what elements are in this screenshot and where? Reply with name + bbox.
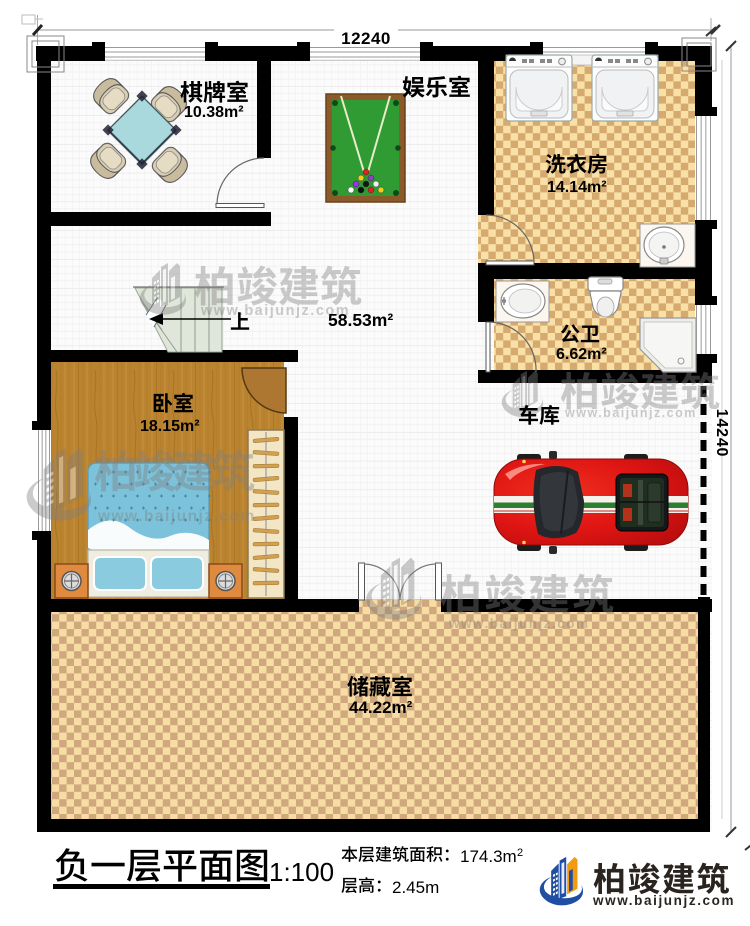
svg-text:58.53m²: 58.53m² (328, 310, 393, 330)
svg-text:14.14m²: 14.14m² (547, 179, 607, 196)
svg-text:2: 2 (517, 847, 523, 859)
svg-text:www.baijunjz.com: www.baijunjz.com (592, 893, 735, 908)
svg-text:www.baijunjz.com: www.baijunjz.com (564, 406, 697, 420)
svg-text:2.45m: 2.45m (392, 878, 439, 897)
svg-text:1:100: 1:100 (269, 857, 334, 887)
svg-text:12240: 12240 (341, 29, 391, 48)
svg-text:18.15m²: 18.15m² (140, 418, 200, 435)
svg-text:www.baijunjz.com: www.baijunjz.com (448, 616, 590, 631)
svg-text:www.baijunjz.com: www.baijunjz.com (97, 508, 256, 525)
svg-text:174.3m: 174.3m (460, 847, 517, 866)
svg-text:10.38m²: 10.38m² (184, 104, 244, 121)
svg-text:6.62m²: 6.62m² (556, 346, 607, 363)
svg-text:14240: 14240 (713, 409, 730, 458)
svg-text:44.22m²: 44.22m² (349, 698, 413, 717)
